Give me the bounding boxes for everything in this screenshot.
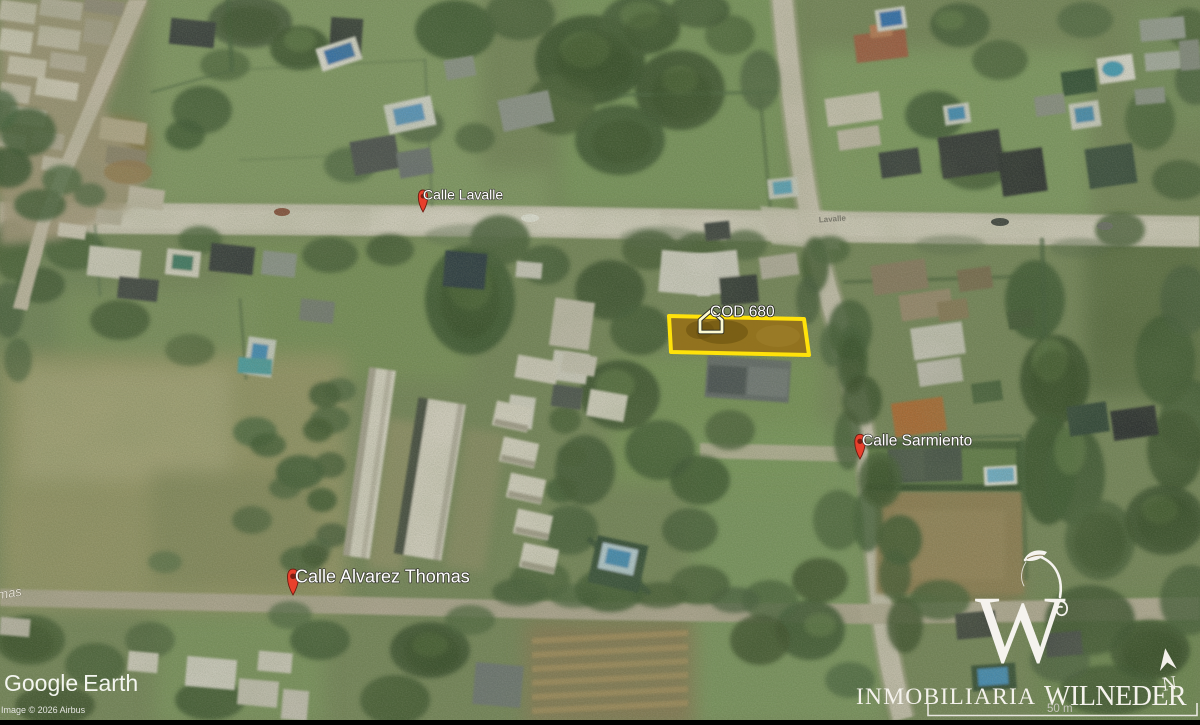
svg-text:GoogleEarth: GoogleEarth (4, 670, 138, 696)
svg-text:Calle Sarmiento: Calle Sarmiento (862, 433, 972, 450)
svg-text:Calle Lavalle: Calle Lavalle (423, 187, 503, 203)
svg-text:N: N (1161, 672, 1178, 696)
svg-text:Image © 2026 Airbus: Image © 2026 Airbus (1, 705, 86, 715)
svg-text:W: W (975, 576, 1066, 683)
svg-text:Lavalle: Lavalle (819, 214, 847, 225)
svg-text:Calle Alvarez Thomas: Calle Alvarez Thomas (295, 567, 470, 587)
svg-text:INMOBILIARIA: INMOBILIARIA (856, 684, 1036, 710)
svg-text:COD 680: COD 680 (710, 304, 775, 321)
svg-text:50 m: 50 m (1047, 703, 1073, 715)
